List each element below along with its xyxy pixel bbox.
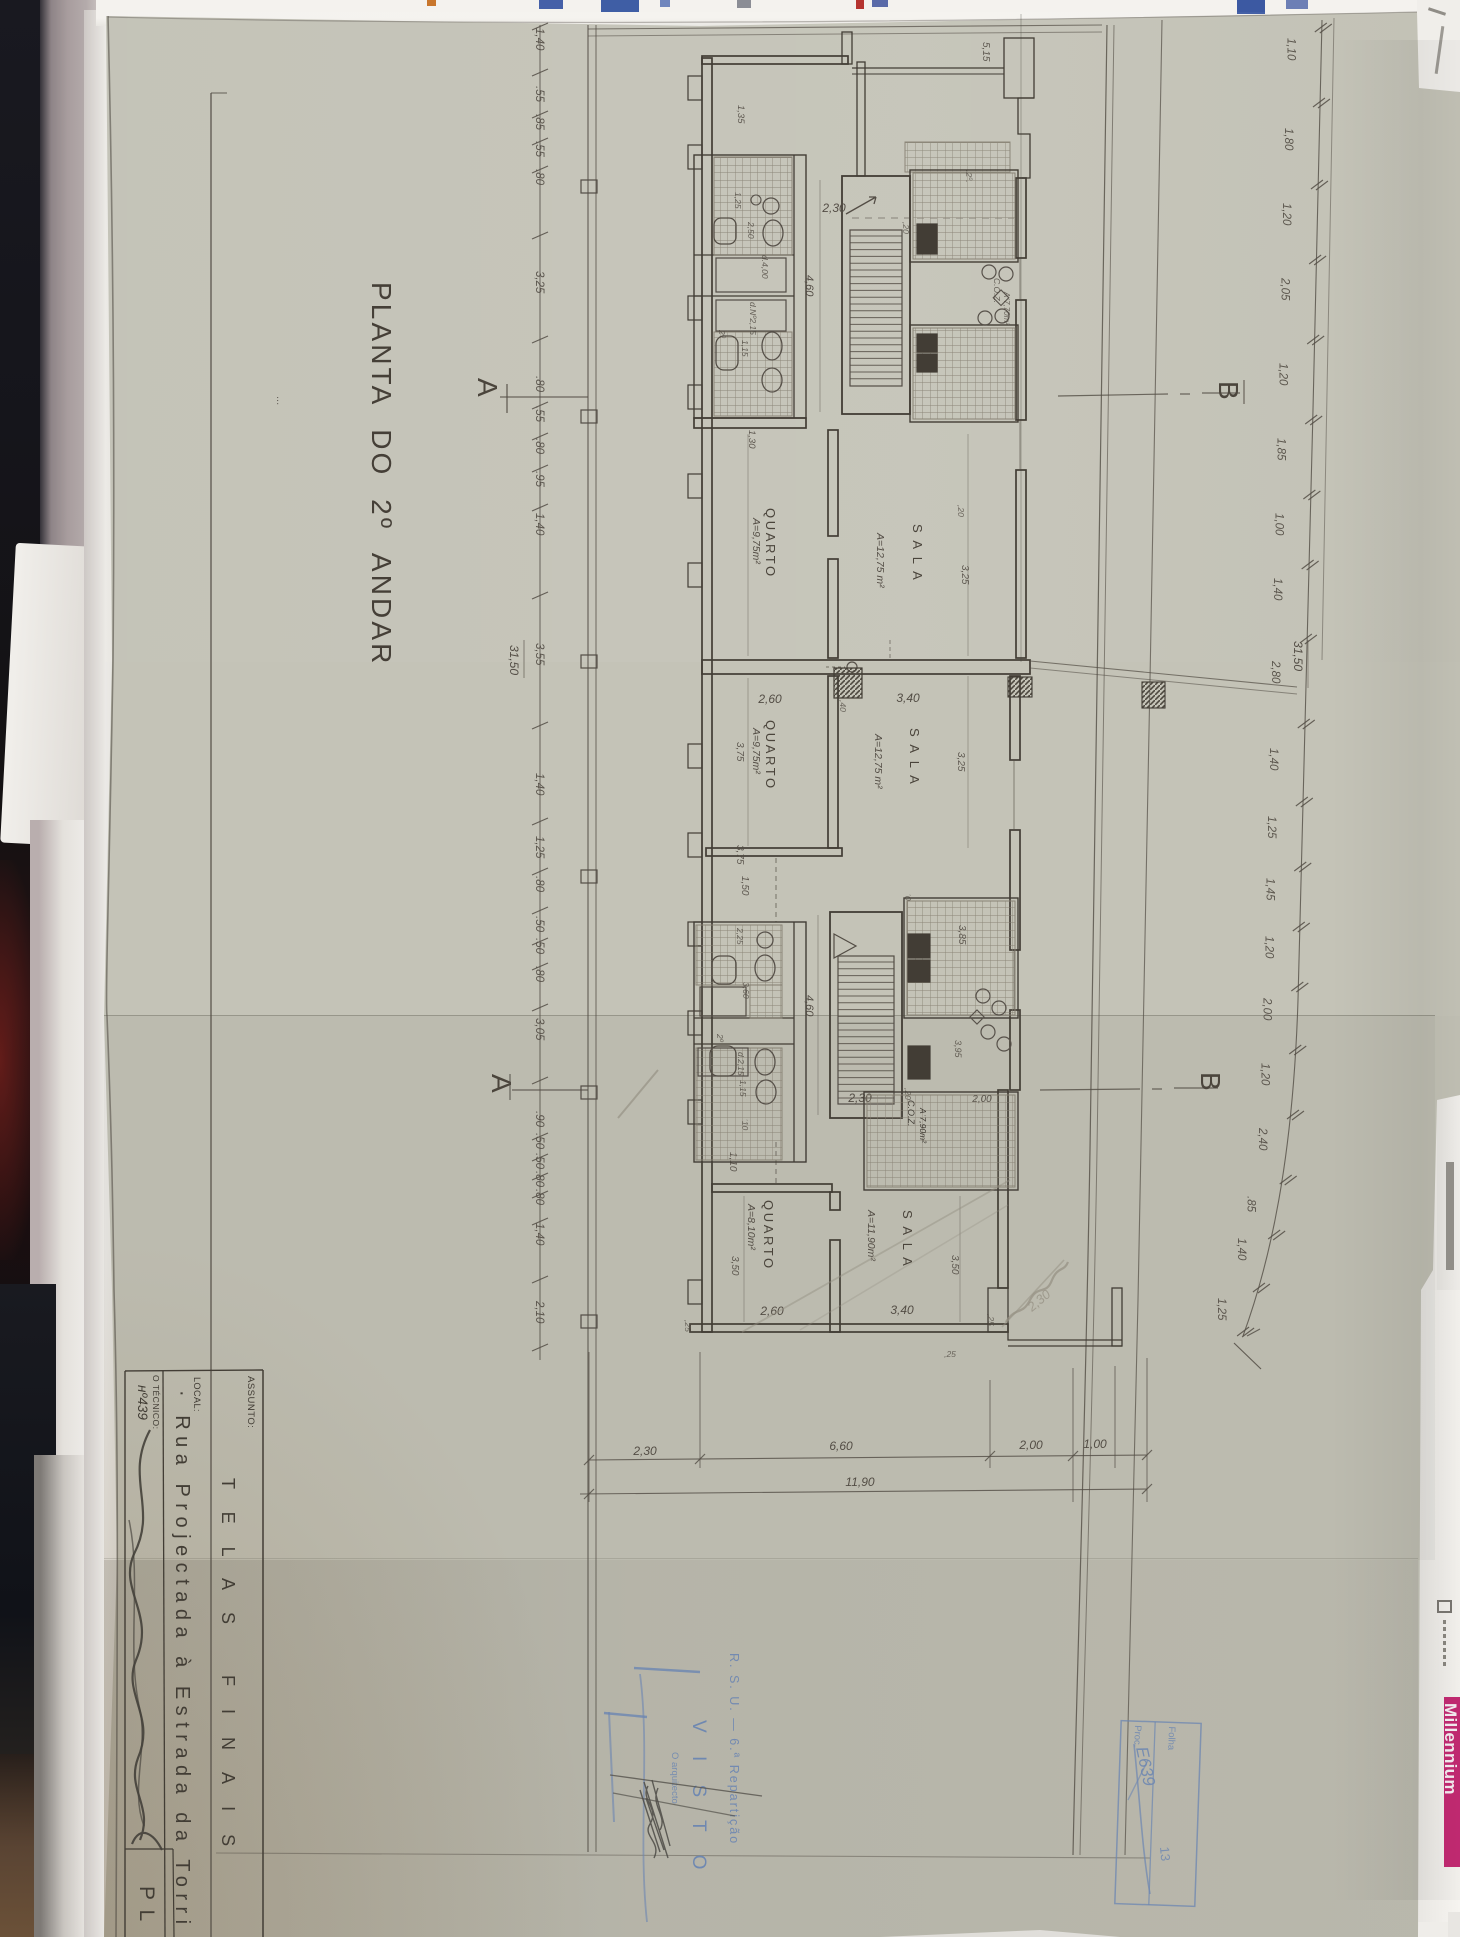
svg-text:2,10: 2,10 bbox=[533, 1300, 545, 1324]
svg-text:.80: .80 bbox=[533, 1171, 545, 1188]
svg-text:2,00: 2,00 bbox=[1018, 1438, 1043, 1452]
svg-text:1,40: 1,40 bbox=[1271, 578, 1283, 601]
svg-text:1,35: 1,35 bbox=[735, 105, 746, 124]
svg-text:d.2,15: d.2,15 bbox=[736, 1052, 746, 1076]
svg-text:1,85: 1,85 bbox=[1274, 438, 1286, 461]
svg-text:3,75: 3,75 bbox=[734, 742, 745, 762]
svg-text:3,25: 3,25 bbox=[955, 752, 966, 772]
svg-text:d.4,00: d.4,00 bbox=[760, 255, 770, 279]
svg-text:QUARTO: QUARTO bbox=[761, 1200, 776, 1271]
svg-text:.80: .80 bbox=[533, 376, 545, 393]
svg-text:A=9,75m²: A=9,75m² bbox=[750, 727, 762, 774]
svg-text:.50: .50 bbox=[533, 1153, 545, 1170]
svg-text:· Rua Projectada à Estrada da: · Rua Projectada à Estrada da Torri bbox=[171, 1390, 193, 1931]
svg-text:.2º.: .2º. bbox=[964, 170, 974, 183]
svg-text:3,85: 3,85 bbox=[956, 925, 967, 945]
svg-text:ʾ0: ʾ0 bbox=[903, 893, 913, 901]
svg-text:.50: .50 bbox=[533, 938, 545, 955]
svg-text:31,50: 31,50 bbox=[1291, 641, 1305, 671]
svg-text:Proc.: Proc. bbox=[1131, 1725, 1143, 1748]
svg-text:ASSUNTO:: ASSUNTO: bbox=[245, 1376, 256, 1428]
svg-text:,40: ,40 bbox=[838, 700, 848, 712]
svg-text:1,30: 1,30 bbox=[746, 430, 757, 449]
svg-text:1,40: 1,40 bbox=[533, 28, 545, 51]
svg-text:.50: .50 bbox=[533, 916, 545, 933]
svg-text:3,50: 3,50 bbox=[729, 1256, 740, 1276]
svg-text:1,25: 1,25 bbox=[1265, 816, 1277, 839]
svg-text:1,40: 1,40 bbox=[533, 1223, 545, 1246]
svg-text:3,50: 3,50 bbox=[949, 1255, 960, 1275]
svg-text:PLANTA DO 2º ANDAR: PLANTA DO 2º ANDAR bbox=[366, 282, 397, 666]
svg-text:1,15: 1,15 bbox=[740, 340, 750, 357]
svg-text:A: A bbox=[486, 1074, 517, 1093]
svg-text:.80: .80 bbox=[533, 876, 545, 893]
svg-text:3,25: 3,25 bbox=[533, 271, 545, 294]
svg-text:S A L A: S A L A bbox=[910, 524, 925, 582]
svg-text:.85: .85 bbox=[1244, 1196, 1256, 1213]
svg-text:31,50: 31,50 bbox=[507, 645, 521, 675]
svg-text:Aʾ7,70m²: Aʾ7,70m² bbox=[1002, 291, 1011, 325]
svg-text:...: ... bbox=[274, 396, 286, 405]
svg-text:1,25: 1,25 bbox=[533, 836, 545, 859]
svg-text:P L: P L bbox=[135, 1886, 158, 1923]
svg-text:1,00: 1,00 bbox=[1083, 1437, 1107, 1451]
svg-text:.95: .95 bbox=[533, 471, 545, 488]
svg-text:Folha: Folha bbox=[1165, 1726, 1177, 1751]
svg-text:5,15: 5,15 bbox=[980, 42, 991, 62]
svg-text:.90: .90 bbox=[533, 1111, 545, 1128]
svg-text:2,00: 2,00 bbox=[1261, 997, 1273, 1021]
svg-text:1,40: 1,40 bbox=[1235, 1238, 1247, 1261]
svg-text:1,10: 1,10 bbox=[1284, 38, 1296, 61]
svg-text:d.Nº2,15: d.Nº2,15 bbox=[748, 302, 758, 335]
svg-text:2,60: 2,60 bbox=[757, 692, 782, 706]
svg-text:.85: .85 bbox=[533, 114, 545, 131]
svg-text:T E L A S F I N A I S: T E L A S F I N A I S bbox=[218, 1478, 238, 1855]
svg-text:.80: .80 bbox=[533, 169, 545, 186]
svg-text:QUARTO: QUARTO bbox=[763, 720, 778, 791]
svg-text:QUARTO: QUARTO bbox=[763, 508, 778, 579]
svg-text:3,40: 3,40 bbox=[890, 1303, 914, 1317]
svg-text:1,20: 1,20 bbox=[1262, 936, 1274, 959]
svg-text:C.O.Z.: C.O.Z. bbox=[992, 278, 1002, 303]
svg-text:2,30: 2,30 bbox=[1024, 1286, 1054, 1315]
svg-text:3,75: 3,75 bbox=[734, 845, 745, 865]
svg-text:2,40: 2,40 bbox=[1256, 1127, 1268, 1151]
svg-text:2º: 2º bbox=[715, 1033, 725, 1043]
svg-text:.55: .55 bbox=[533, 141, 545, 158]
svg-text:,25: ,25 bbox=[683, 1320, 693, 1332]
svg-text:2,30: 2,30 bbox=[821, 201, 846, 215]
svg-text:1,15: 1,15 bbox=[738, 1080, 748, 1097]
svg-text:1,20: 1,20 bbox=[1280, 203, 1292, 226]
svg-text:.55: .55 bbox=[533, 406, 545, 423]
svg-text:нº439: нº439 bbox=[135, 1385, 150, 1420]
svg-text:O arquitecto: O arquitecto bbox=[669, 1752, 680, 1804]
svg-text:,25: ,25 bbox=[986, 1314, 996, 1326]
svg-text:.55: .55 bbox=[533, 86, 545, 103]
svg-text:2,50: 2,50 bbox=[746, 221, 756, 239]
svg-text:V I S T O: V I S T O bbox=[688, 1720, 709, 1878]
svg-text:2,30: 2,30 bbox=[632, 1444, 657, 1458]
svg-text:A=12,75 m²: A=12,75 m² bbox=[874, 532, 886, 588]
svg-text:2º: 2º bbox=[717, 329, 727, 339]
svg-text:A=8,10m²: A=8,10m² bbox=[745, 1203, 757, 1250]
svg-text:,25: ,25 bbox=[944, 1349, 956, 1359]
svg-text:S A L A: S A L A bbox=[907, 728, 922, 786]
svg-text:B: B bbox=[1213, 381, 1244, 400]
svg-text:11,90: 11,90 bbox=[845, 1475, 874, 1489]
svg-text:2,25: 2,25 bbox=[735, 927, 745, 945]
svg-text:1,25: 1,25 bbox=[733, 192, 743, 209]
svg-text:1,25: 1,25 bbox=[1215, 1298, 1227, 1321]
svg-text:.50: .50 bbox=[533, 1133, 545, 1150]
svg-text:A=12,75 m²: A=12,75 m² bbox=[872, 733, 884, 789]
svg-text:1,40: 1,40 bbox=[533, 773, 545, 796]
svg-text:1,20: 1,20 bbox=[1276, 363, 1288, 386]
svg-text:Aʾ7,90m²: Aʾ7,90m² bbox=[918, 1107, 928, 1144]
svg-text:,20: ,20 bbox=[956, 505, 966, 517]
svg-text:3,05: 3,05 bbox=[533, 1018, 545, 1041]
svg-text:1,50: 1,50 bbox=[739, 876, 750, 896]
svg-text:2,05: 2,05 bbox=[1278, 277, 1290, 301]
svg-text:4,60: 4,60 bbox=[803, 995, 815, 1017]
svg-text:B: B bbox=[1195, 1072, 1226, 1091]
svg-text:1,80: 1,80 bbox=[1282, 128, 1294, 151]
svg-text:6,60: 6,60 bbox=[829, 1439, 853, 1453]
svg-text:1,20: 1,20 bbox=[1258, 1063, 1270, 1086]
svg-text:C.O.Z.: C.O.Z. bbox=[906, 1100, 916, 1127]
svg-text:O TÉCNICO:: O TÉCNICO: bbox=[151, 1375, 161, 1429]
svg-text:.80: .80 bbox=[533, 966, 545, 983]
svg-text:A=9,75m²: A=9,75m² bbox=[750, 517, 762, 564]
svg-text:A: A bbox=[472, 378, 503, 397]
svg-text:4,60: 4,60 bbox=[803, 275, 815, 297]
svg-text:2,80: 2,80 bbox=[1269, 660, 1281, 684]
svg-text:3,95: 3,95 bbox=[953, 1040, 963, 1059]
svg-text:.80: .80 bbox=[533, 1189, 545, 1206]
svg-text:3,55: 3,55 bbox=[533, 643, 545, 666]
svg-text:1,45: 1,45 bbox=[1264, 878, 1276, 901]
svg-text:1,00: 1,00 bbox=[1273, 513, 1285, 536]
svg-text:3,25: 3,25 bbox=[959, 565, 970, 585]
svg-text:.80: .80 bbox=[533, 438, 545, 455]
svg-text:2,00: 2,00 bbox=[971, 1094, 992, 1105]
svg-text:13: 13 bbox=[1157, 1846, 1173, 1862]
svg-text:1,40: 1,40 bbox=[1267, 748, 1279, 771]
svg-text:1,40: 1,40 bbox=[533, 513, 545, 536]
svg-text:A=11,90m²: A=11,90m² bbox=[865, 1209, 877, 1261]
svg-text:3,40: 3,40 bbox=[896, 691, 920, 705]
svg-text:3,60: 3,60 bbox=[741, 982, 751, 999]
